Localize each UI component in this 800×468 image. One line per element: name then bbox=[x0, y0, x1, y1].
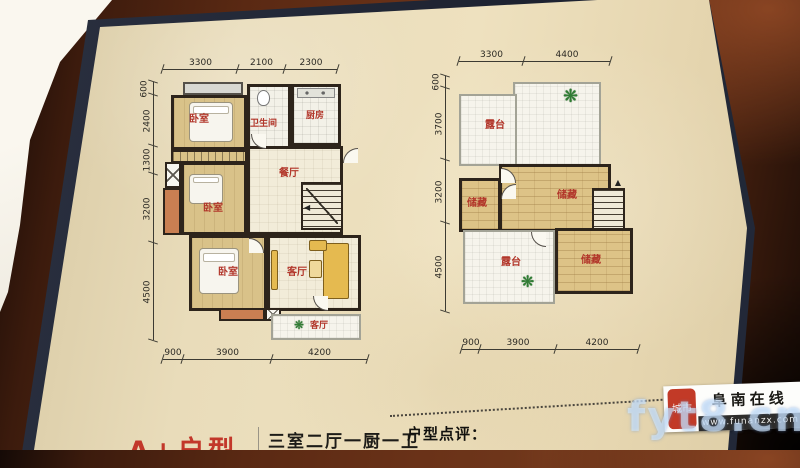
staircase: ▲ bbox=[592, 188, 625, 230]
side-balcony bbox=[163, 188, 181, 235]
entry-door bbox=[343, 148, 358, 163]
plan2-dims-left: 600 3700 3200 4500 bbox=[432, 76, 446, 311]
dim-label: 4200 bbox=[272, 347, 367, 360]
plan1-dims-left: 600 2400 1300 3200 4500 bbox=[140, 82, 154, 340]
dim-label: 4500 bbox=[432, 223, 446, 311]
dim-label: 900 bbox=[163, 347, 183, 360]
coffee-table bbox=[309, 260, 322, 278]
dim-label: 2400 bbox=[140, 95, 154, 146]
watermark-overlay-text: fyt8.cn bbox=[627, 392, 800, 441]
armchair bbox=[309, 240, 327, 251]
room-label: 厨房 bbox=[306, 112, 324, 121]
dim-label: 2300 bbox=[285, 57, 337, 70]
layout-summary: 三室二厅一厨一卫 bbox=[268, 427, 420, 452]
plan-title: A+户型 bbox=[128, 429, 238, 468]
room-label: 卧室 bbox=[218, 268, 238, 278]
plan2-dims-bottom: 900 3900 4200 bbox=[462, 337, 638, 350]
room-label: 露台 bbox=[501, 258, 521, 268]
plant-icon: ❋ bbox=[294, 319, 304, 331]
room-label: 客厅 bbox=[287, 268, 307, 278]
dim-label: 3200 bbox=[432, 160, 446, 223]
sofa bbox=[323, 243, 349, 299]
stairs-direction-line bbox=[306, 188, 338, 225]
dim-label: 4400 bbox=[524, 49, 610, 62]
stairs-arrow-left-icon: ◀ bbox=[304, 204, 310, 212]
title-divider bbox=[258, 427, 259, 450]
review-label: 户型点评： bbox=[407, 423, 487, 444]
dim-label: 3900 bbox=[183, 347, 272, 360]
room-label: 餐厅 bbox=[279, 169, 299, 179]
room-label: 露台 bbox=[485, 121, 505, 131]
duct-shaft bbox=[165, 162, 181, 188]
dim-label: 2100 bbox=[238, 57, 285, 70]
brochure-page: 3300 2100 2300 600 2400 1300 3200 4500 9… bbox=[0, 0, 800, 450]
dim-label: 1300 bbox=[140, 146, 154, 174]
plant-icon: ❋ bbox=[563, 88, 578, 106]
bed bbox=[189, 174, 223, 204]
dim-label: 3200 bbox=[140, 174, 154, 243]
dim-label: 900 bbox=[462, 337, 480, 350]
dim-label: 3300 bbox=[459, 49, 524, 62]
dim-label: 3900 bbox=[480, 337, 556, 350]
stove-icon bbox=[297, 88, 335, 98]
dim-label: 3300 bbox=[163, 57, 238, 70]
terrace-top-right bbox=[513, 82, 601, 166]
staircase: ◀ bbox=[301, 182, 343, 230]
toilet-icon bbox=[257, 90, 270, 106]
plan1-dims-top: 3300 2100 2300 bbox=[163, 57, 337, 70]
room-label: 卧室 bbox=[189, 115, 209, 125]
room-label: 卫生间 bbox=[250, 120, 277, 129]
bay-window bbox=[183, 82, 243, 95]
stairs-arrow-up-icon: ▲ bbox=[615, 179, 621, 187]
room-label: 储藏 bbox=[557, 191, 577, 201]
room-label: 储藏 bbox=[581, 256, 601, 266]
room-label: 客厅 bbox=[310, 322, 328, 331]
plan1-dims-bottom: 900 3900 4200 bbox=[163, 347, 367, 360]
plan2-dims-top: 3300 4400 bbox=[459, 49, 610, 62]
dim-label: 3700 bbox=[432, 88, 446, 160]
floorplan-second-floor: ▲ ❋ ❋ 露台 储藏 储藏 露台 储藏 bbox=[455, 76, 640, 311]
dim-label: 4200 bbox=[556, 337, 638, 350]
dim-label: 4500 bbox=[140, 243, 154, 340]
room-label: 卧室 bbox=[203, 204, 223, 214]
plant-icon: ❋ bbox=[521, 274, 534, 290]
bay-window bbox=[219, 308, 265, 321]
room-label: 储藏 bbox=[467, 199, 487, 209]
tv-cabinet bbox=[271, 250, 278, 290]
floorplan-first-floor: ◀ 卧室 卫生间 厨房 餐厅 卧室 卧室 客厅 ❋ 客厅 bbox=[163, 82, 367, 340]
